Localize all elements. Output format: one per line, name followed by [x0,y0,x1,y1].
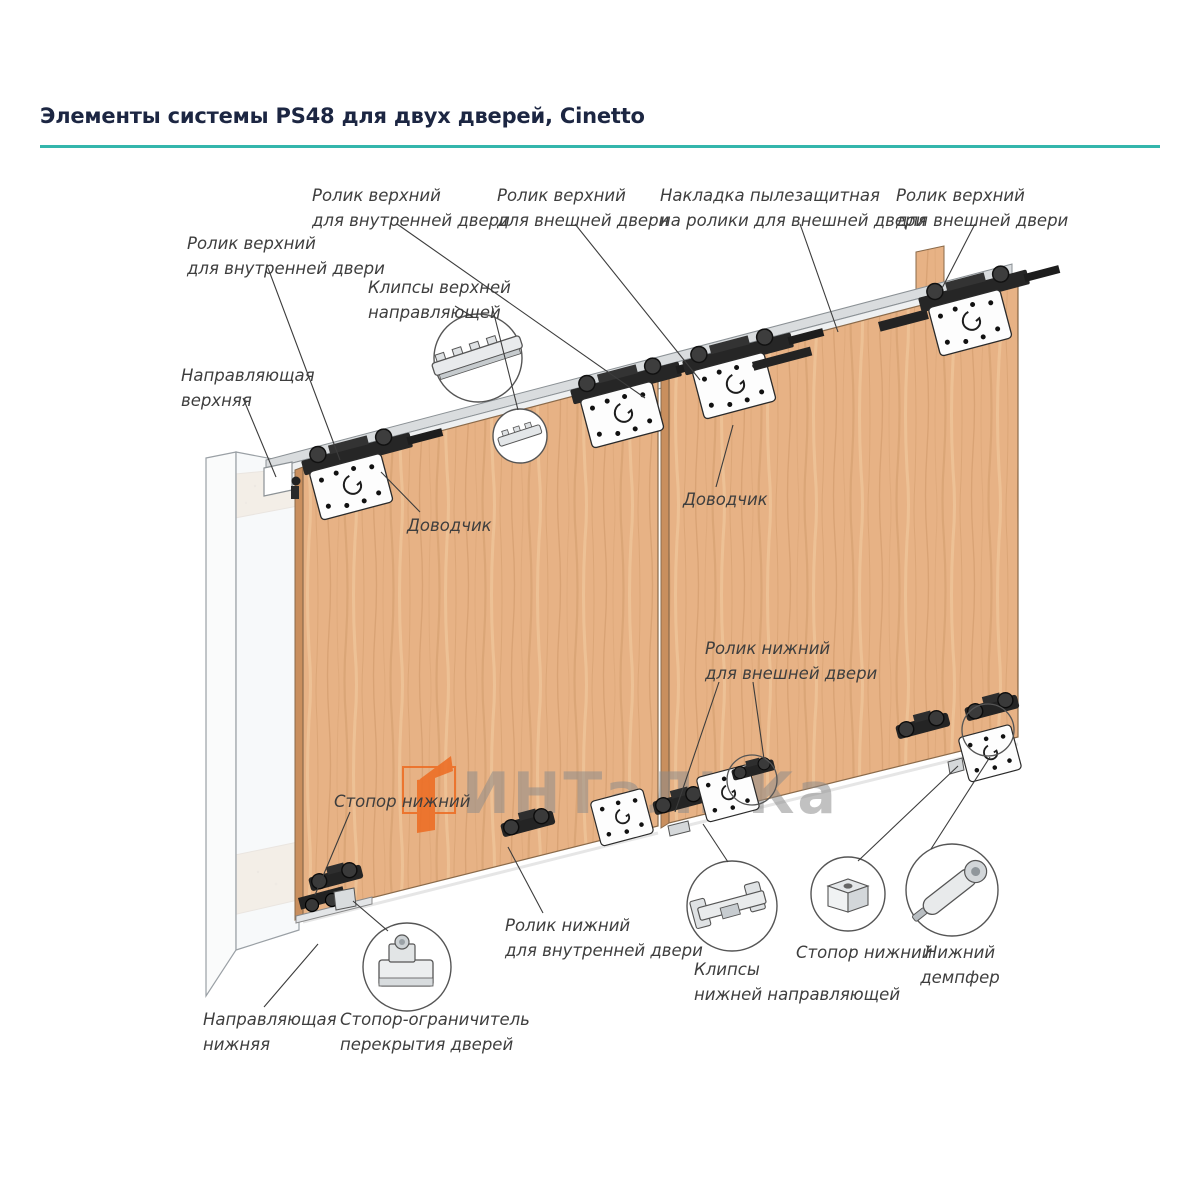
label-bottom-guide: Направляющая нижняя [203,1008,337,1058]
label-top-guide-clips: Клипсы верхней направляющей [368,276,511,326]
title-rule [40,145,1160,148]
label-top-guide: Направляющая верхняя [181,364,315,414]
callout-stop-limiter [363,923,451,1011]
callout-bottom-stopper [811,857,885,931]
label-bottom-roller-outer: Ролик нижний для внешней двери [705,637,877,687]
page-title: Элементы системы PS48 для двух дверей, C… [40,104,645,129]
label-top-roller-outer-right: Ролик верхний для внешней двери [896,184,1068,234]
label-dust-cover: Накладка пылезащитная на ролики для внеш… [660,184,926,234]
label-top-roller-outer-mid: Ролик верхний для внешней двери [497,184,669,234]
callout-bottom-damper [906,844,998,936]
side-panel [206,452,299,996]
callout-top-clips-small [493,409,547,463]
label-bottom-stopper-right: Стопор нижний [796,941,932,966]
label-closer-left: Доводчик [407,514,492,539]
label-top-roller-inner-right: Ролик верхний для внутренней двери [312,184,510,234]
label-bottom-damper: Нижний демпфер [917,941,1003,991]
diagram-illustration: ИНТаЛИКа [0,0,1200,1200]
label-closer-right: Доводчик [683,488,768,513]
callout-top-clips [429,314,524,402]
page: ИНТаЛИКа [0,0,1200,1200]
label-bottom-stopper-mid: Стопор нижний [334,790,470,815]
label-top-roller-inner-left: Ролик верхний для внутренней двери [187,232,385,282]
label-overlap-stop-limiter: Стопор-ограничитель перекрытия дверей [340,1008,530,1058]
label-bottom-roller-inner: Ролик нижний для внутренней двери [505,914,703,964]
